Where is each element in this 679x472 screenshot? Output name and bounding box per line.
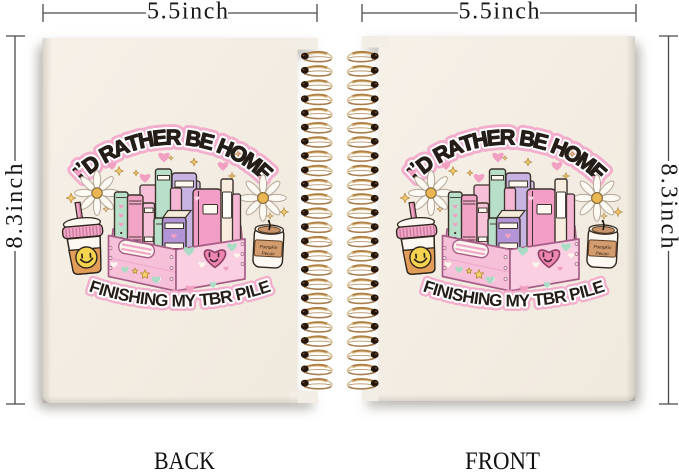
svg-text:G: G — [154, 289, 169, 310]
svg-text:Pumpkin: Pumpkin — [593, 244, 612, 250]
svg-text:Pecan: Pecan — [595, 251, 609, 257]
svg-text:BACK: BACK — [154, 446, 215, 472]
svg-text:G: G — [488, 289, 503, 310]
svg-text:FRONT: FRONT — [465, 446, 540, 472]
svg-text:R: R — [500, 125, 516, 149]
svg-text:Y: Y — [184, 290, 197, 310]
svg-text:Y: Y — [518, 290, 531, 310]
svg-text:R: R — [166, 125, 182, 149]
svg-text:Pecan: Pecan — [261, 251, 275, 257]
svg-text:Pumpkin: Pumpkin — [259, 244, 278, 250]
